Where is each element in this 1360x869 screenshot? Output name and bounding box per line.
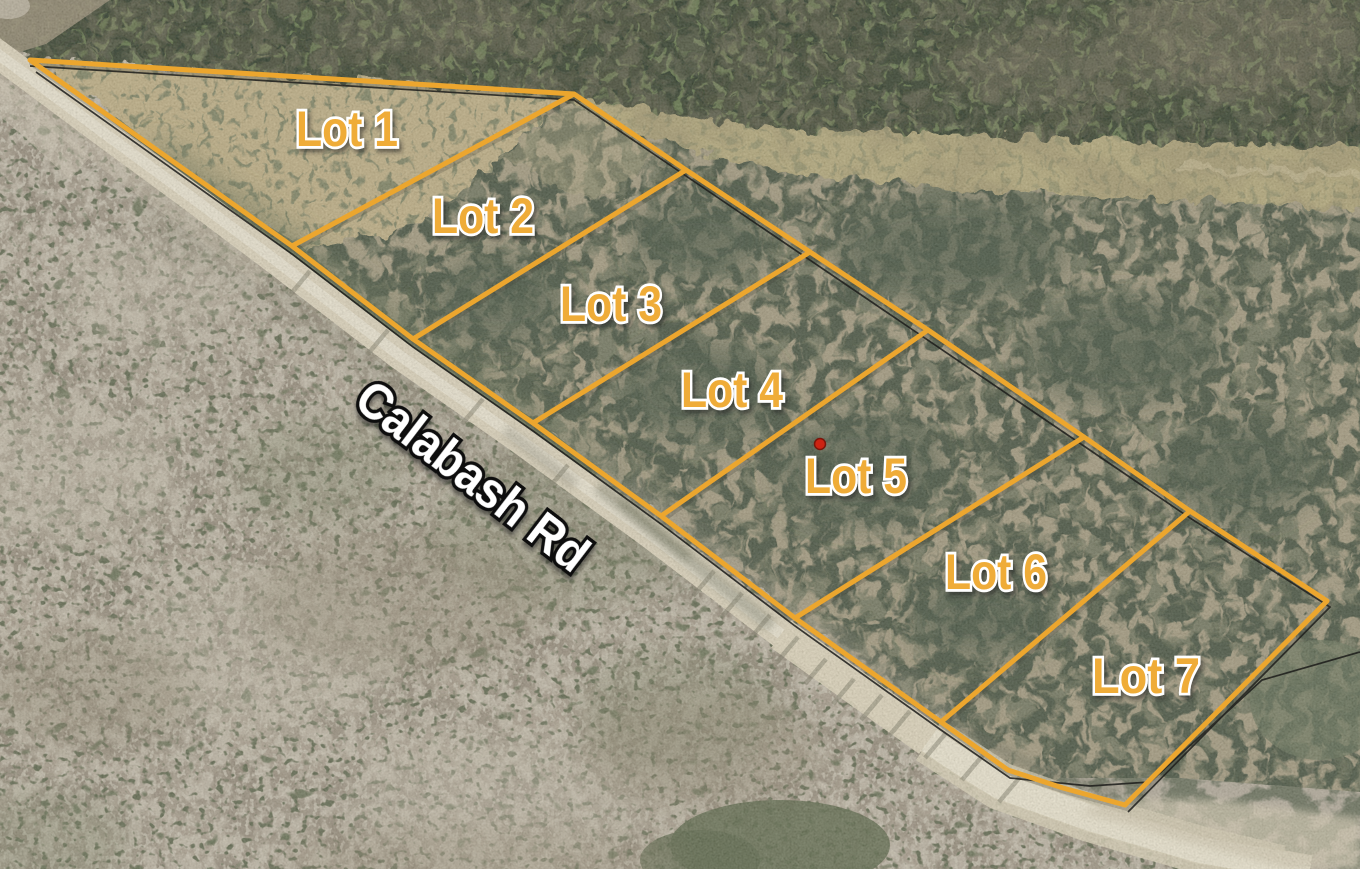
svg-text:Lot 4: Lot 4 [681, 362, 783, 418]
svg-text:Lot 2: Lot 2 [432, 188, 534, 244]
svg-text:Lot 3: Lot 3 [560, 276, 662, 332]
svg-text:Lot 7: Lot 7 [1092, 648, 1200, 704]
svg-text:Lot 6: Lot 6 [945, 544, 1047, 600]
svg-text:Lot 5: Lot 5 [805, 448, 907, 504]
svg-text:Lot 1: Lot 1 [296, 101, 398, 157]
